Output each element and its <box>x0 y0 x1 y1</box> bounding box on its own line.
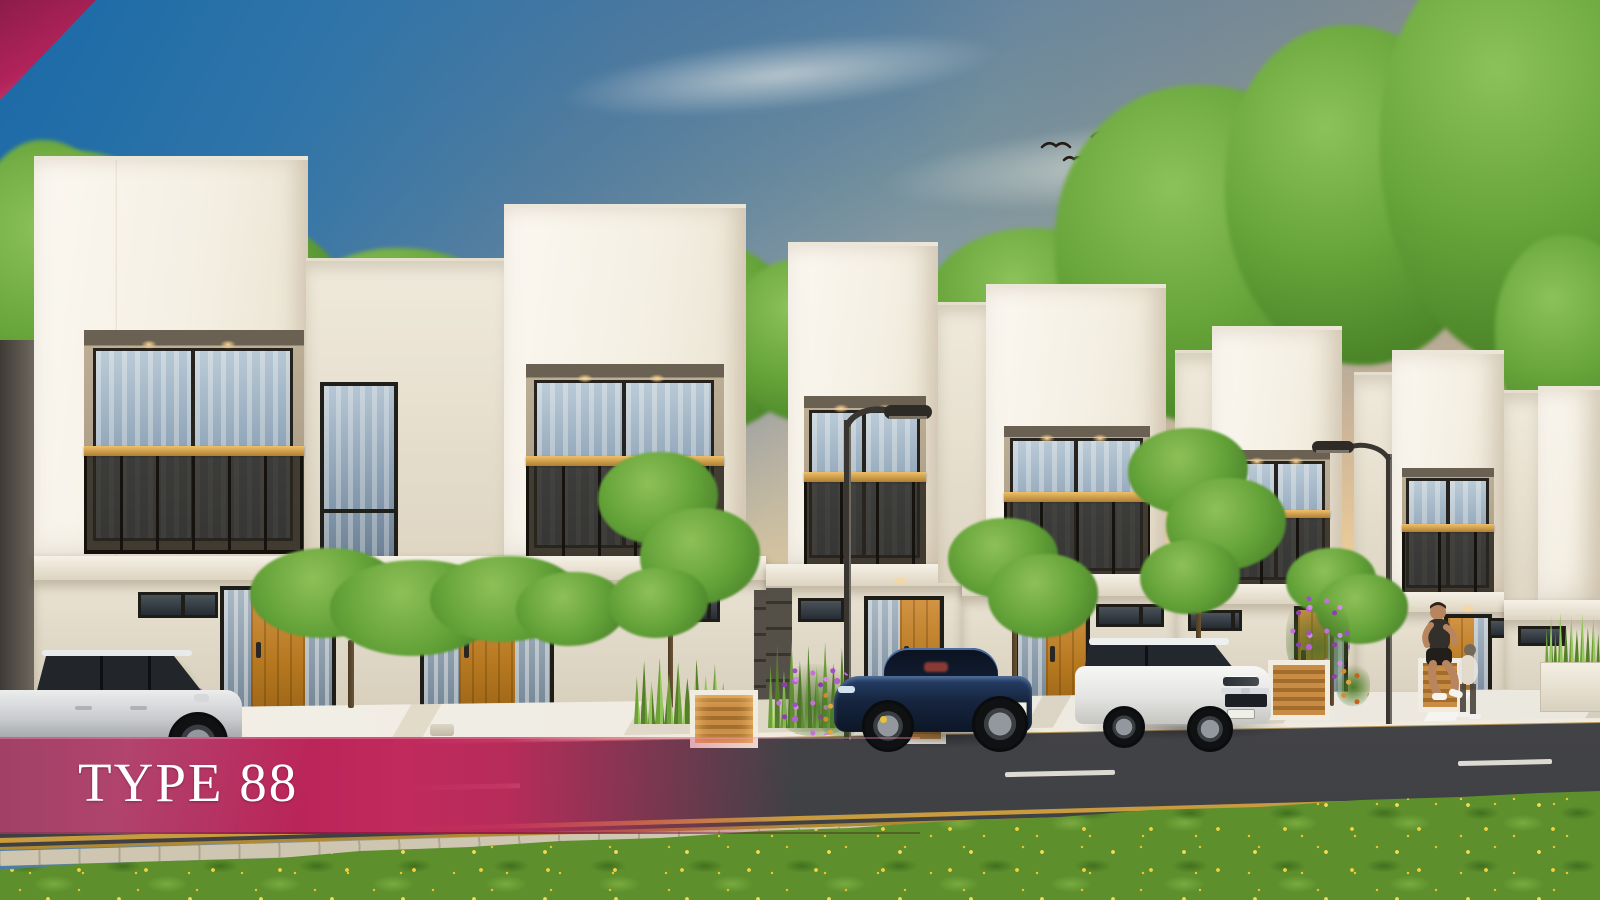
banner-label: TYPE 88 <box>78 751 298 814</box>
house7-tower <box>1538 386 1600 606</box>
white-planter <box>1540 662 1600 712</box>
license-plate <box>1227 709 1255 719</box>
croton-shrub <box>1336 664 1370 706</box>
headlight <box>1223 676 1259 686</box>
navy-sports-car <box>828 640 1038 744</box>
house1-balcony <box>84 330 304 554</box>
grille <box>1225 694 1267 707</box>
upper-window <box>320 382 398 566</box>
transom-window <box>1518 626 1566 646</box>
brake-caliper <box>880 716 887 723</box>
jogger <box>1408 598 1508 738</box>
headlight <box>838 686 855 693</box>
side-mirror <box>194 694 209 702</box>
eave <box>1504 600 1600 620</box>
planter-box <box>1268 660 1330 720</box>
architectural-rendering: TYPE 88 <box>0 0 1600 900</box>
white-hatchback-car <box>1075 636 1275 736</box>
type-banner: TYPE 88 <box>0 737 920 834</box>
transom-window <box>138 592 218 618</box>
white-wagon-car <box>0 650 250 750</box>
transom-window <box>1096 604 1164 627</box>
parking-bumper <box>430 724 454 736</box>
emblem <box>1241 688 1250 694</box>
recessed-wall <box>1504 390 1540 605</box>
